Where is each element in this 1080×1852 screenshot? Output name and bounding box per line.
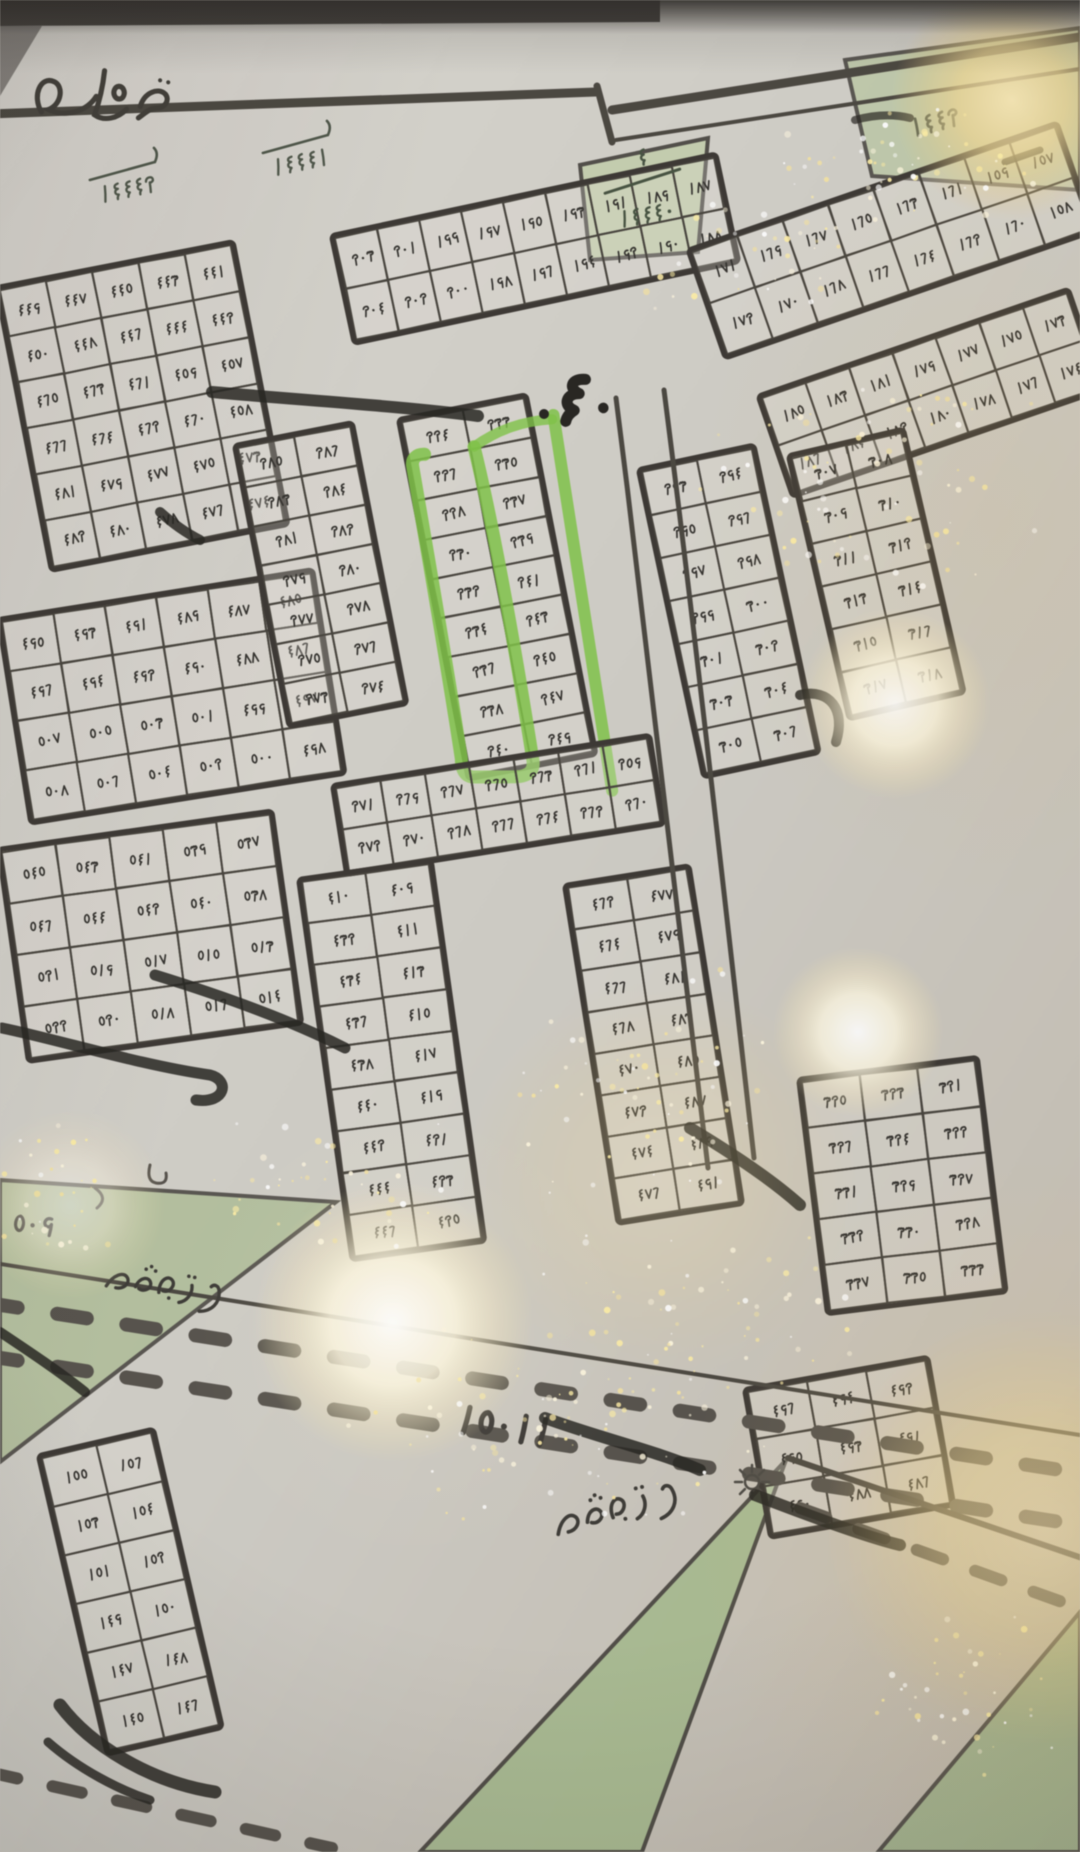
plot-cell xyxy=(17,948,77,1007)
plot-cell xyxy=(17,712,77,770)
plot-cell xyxy=(514,753,565,802)
plot-cell xyxy=(282,722,341,779)
plot-cell xyxy=(2,844,63,904)
cadastral-map-photo xyxy=(0,0,1080,1852)
plot-cell xyxy=(871,1159,935,1212)
marker-dot xyxy=(539,409,549,419)
plot-cell xyxy=(70,940,131,999)
plot-cell xyxy=(939,1243,1002,1296)
plot-cell xyxy=(120,696,180,754)
photo-top-frame-dark xyxy=(0,0,660,26)
plot-cell xyxy=(216,815,276,874)
plot-number xyxy=(92,432,112,445)
plot-cell xyxy=(923,1107,986,1159)
plot-cell xyxy=(128,746,187,804)
plot-cell xyxy=(877,1205,940,1257)
plot-cell xyxy=(69,704,129,762)
plot-cell xyxy=(520,794,571,843)
plot-cell xyxy=(223,866,284,925)
plot-cell xyxy=(54,606,113,663)
map-svg xyxy=(0,0,1080,1852)
plot-cell xyxy=(77,992,137,1051)
plot-cell xyxy=(231,729,290,787)
plot-cell xyxy=(476,801,527,849)
plot-cell xyxy=(163,822,223,881)
plot-cell xyxy=(131,984,192,1043)
plot-cell xyxy=(469,760,520,809)
plot-cell xyxy=(177,925,237,983)
plot-cell xyxy=(865,1113,929,1166)
plot-cell xyxy=(425,767,476,816)
plot-cell xyxy=(381,774,432,822)
plot-cell xyxy=(102,310,157,365)
plot-cell xyxy=(27,420,82,475)
plot-cell xyxy=(230,917,291,977)
plot-cell xyxy=(928,1152,991,1204)
plot-cell xyxy=(172,688,231,745)
plot-block-g xyxy=(0,242,288,571)
plot-cell xyxy=(558,746,609,794)
plot-cell xyxy=(180,738,239,795)
plot-block-h2 xyxy=(0,811,302,1061)
glare-spot xyxy=(800,608,990,798)
plot-number xyxy=(427,430,449,443)
plot-cell xyxy=(934,1198,997,1251)
plot-cell xyxy=(128,448,183,503)
plot-cell xyxy=(25,762,84,820)
plot-cell xyxy=(10,663,69,720)
plot-cell xyxy=(565,787,616,835)
plot-cell xyxy=(609,780,660,829)
glare-spot xyxy=(460,980,860,1380)
plot-cell xyxy=(432,808,483,856)
plot-cell xyxy=(77,754,136,812)
plot-cell xyxy=(61,655,121,713)
plot-cell xyxy=(882,1251,945,1303)
plot-number xyxy=(961,1265,984,1277)
plot-cell xyxy=(104,597,164,655)
